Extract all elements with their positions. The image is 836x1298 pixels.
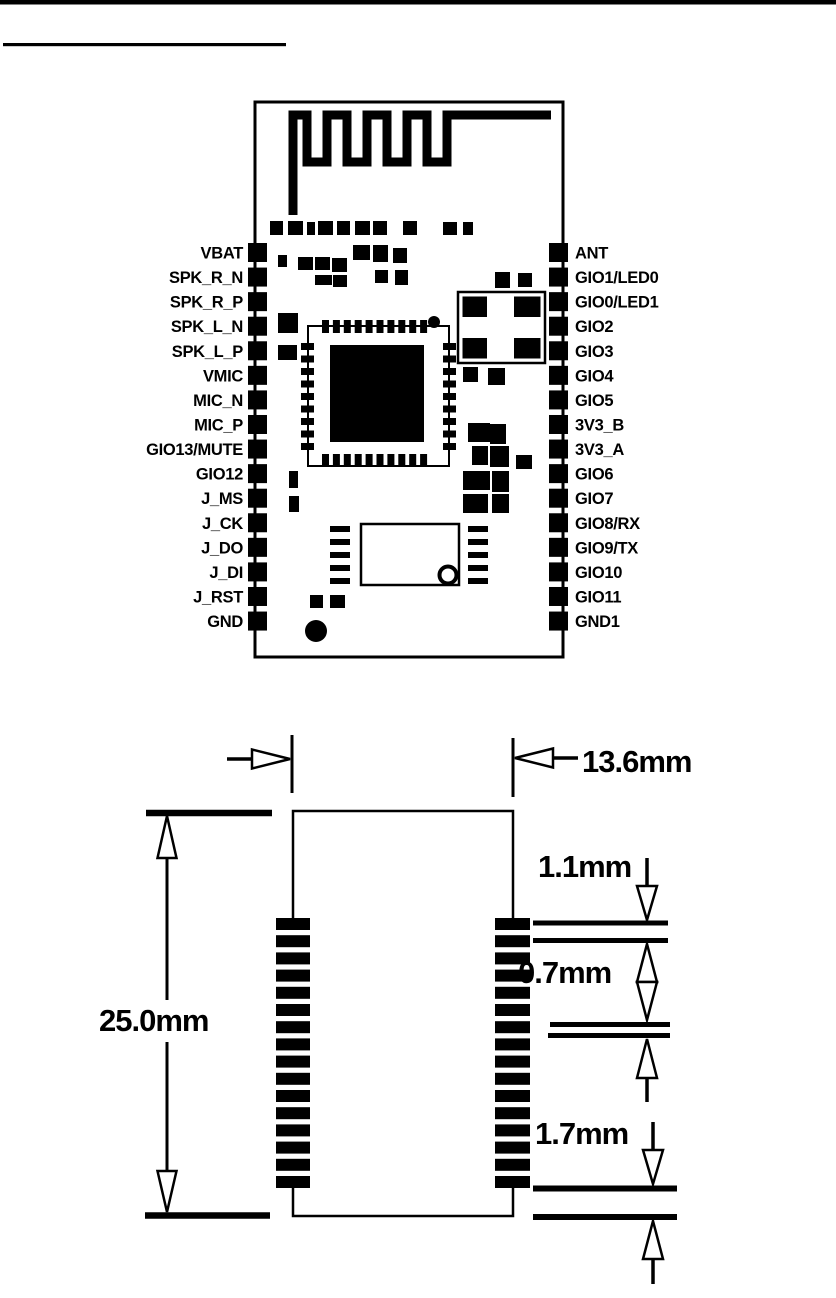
passive-component — [492, 471, 509, 492]
pin-pad-left — [248, 538, 267, 557]
ic-pin — [355, 320, 362, 333]
pin-pad-left — [248, 341, 267, 360]
ic-pin — [443, 368, 456, 375]
footprint-pad-left — [276, 1090, 310, 1102]
pin-label-left: GIO12 — [196, 466, 243, 484]
pin-pad-left — [248, 292, 267, 311]
ic-pin — [443, 418, 456, 425]
passive-component — [337, 221, 350, 235]
pin-label-left: GIO13/MUTE — [146, 441, 243, 459]
passive-component — [307, 222, 315, 235]
ic-pin — [301, 381, 314, 388]
ic-pin — [377, 454, 384, 467]
pin-pad-left — [248, 243, 267, 262]
ic-pin — [443, 343, 456, 350]
passive-component — [492, 494, 509, 513]
ic-pin — [366, 454, 373, 467]
footprint-pad-left — [276, 1107, 310, 1119]
pin-pad-right — [549, 243, 568, 262]
pad-gap-label: 0.7mm — [518, 955, 611, 990]
shield-pad — [468, 539, 488, 545]
pin-pad-right — [549, 612, 568, 631]
pin-pad-right — [549, 268, 568, 287]
module-diagram-canvas: VBATSPK_R_NSPK_R_PSPK_L_NSPK_L_PVMICMIC_… — [0, 0, 836, 1298]
passive-component — [463, 367, 478, 382]
pin-label-right: GIO5 — [575, 392, 613, 410]
passive-component — [375, 270, 388, 283]
pin-pad-right — [549, 317, 568, 336]
ic-pin — [377, 320, 384, 333]
passive-component — [488, 368, 505, 385]
footprint-pad-left — [276, 1176, 310, 1188]
scanned-datasheet-page: VBATSPK_R_NSPK_R_PSPK_L_NSPK_L_PVMICMIC_… — [0, 0, 836, 1298]
passive-component — [393, 248, 407, 263]
shield-pad — [330, 565, 350, 571]
fiducial-circle — [440, 567, 457, 584]
pin-label-right: 3V3_B — [575, 416, 624, 434]
passive-component — [353, 245, 370, 260]
body-outline — [293, 811, 513, 1216]
pin-label-right: 3V3_A — [575, 441, 624, 459]
passive-component — [315, 257, 330, 270]
pin-pad-right — [549, 440, 568, 459]
width-dimension: 13.6mm — [227, 735, 691, 797]
pin-pad-left — [248, 317, 267, 336]
footprint-pad-right — [495, 1090, 530, 1102]
pin-pad-left — [248, 390, 267, 409]
pin-pad-left — [248, 489, 267, 508]
footprint-pad-right — [495, 1107, 530, 1119]
footprint-pad-left — [276, 1021, 310, 1033]
passive-component — [318, 221, 333, 235]
arrowhead-right-icon — [252, 750, 290, 769]
footprint-pad-left — [276, 1073, 310, 1085]
footprint-pad-left — [276, 935, 310, 947]
pin-pad-right — [549, 587, 568, 606]
shield-pad — [468, 526, 488, 532]
pin-pad-right — [549, 341, 568, 360]
footprint-pad-left — [276, 1159, 310, 1171]
pin-label-right: GIO7 — [575, 490, 613, 508]
ic-pin — [443, 443, 456, 450]
ic-pin — [355, 454, 362, 467]
height-dimension-label: 25.0mm — [99, 1003, 208, 1038]
pin-pad-left — [248, 562, 267, 581]
arrowhead-down-icon — [158, 1171, 177, 1212]
passive-component — [270, 221, 283, 235]
arrowhead-down-icon — [643, 1150, 663, 1184]
pin-pad-right — [549, 513, 568, 532]
pin-label-left: J_MS — [201, 490, 243, 508]
mechanical-dimension-drawing: 13.6mm 25.0mm 1.1mm — [99, 735, 691, 1284]
arrowhead-up-icon — [158, 816, 177, 858]
main-ic — [301, 316, 456, 467]
ic-pin — [301, 406, 314, 413]
passive-component — [373, 221, 387, 235]
pin-pad-right — [549, 390, 568, 409]
pin-pad-left — [248, 366, 267, 385]
shield-pad — [330, 539, 350, 545]
ic-pin — [366, 320, 373, 333]
footprint-pad-left — [276, 1056, 310, 1068]
pin-pad-right — [549, 366, 568, 385]
main-ic-die — [330, 345, 424, 442]
footprint-pad-left — [276, 1004, 310, 1016]
shield-pad — [468, 552, 488, 558]
passive-component — [495, 272, 510, 288]
arrowhead-down-icon — [637, 982, 657, 1020]
title-underline — [3, 43, 286, 46]
passive-component — [333, 275, 347, 287]
ic-pin — [420, 320, 427, 333]
passive-component — [443, 222, 457, 235]
crystal-component — [458, 292, 545, 363]
pin-label-left: MIC_N — [193, 392, 243, 410]
passive-component — [330, 595, 345, 608]
shield-pad — [330, 578, 350, 584]
passive-component — [395, 270, 408, 285]
ic-pin — [398, 320, 405, 333]
footprint-pad-right — [495, 1176, 530, 1188]
passive-component — [278, 313, 298, 333]
crystal-cross-vertical — [487, 297, 514, 359]
passive-component — [490, 424, 506, 444]
footprint-pad-left — [276, 1124, 310, 1136]
shield-pad — [330, 552, 350, 558]
pad-top-offset-label: 1.1mm — [538, 849, 631, 884]
left-pin-labels: VBATSPK_R_NSPK_R_PSPK_L_NSPK_L_PVMICMIC_… — [146, 245, 243, 632]
footprint-pad-right — [495, 1021, 530, 1033]
pin-label-left: VBAT — [201, 245, 244, 263]
ic-pin — [322, 320, 329, 333]
footprint-pad-right — [495, 1004, 530, 1016]
passive-component — [332, 258, 347, 272]
pin-label-left: J_DO — [201, 539, 243, 557]
left-pad-column — [276, 918, 310, 1188]
passive-component — [278, 345, 297, 360]
ic-pin — [333, 320, 340, 333]
pin-label-right: GIO10 — [575, 564, 622, 582]
arrowhead-left-icon — [515, 749, 553, 768]
pin-label-left: SPK_R_N — [169, 269, 243, 287]
footprint-pad-right — [495, 1073, 530, 1085]
right-pin-labels: ANTGIO1/LED0GIO0/LED1GIO2GIO3GIO4GIO53V3… — [575, 245, 659, 632]
ic-pin — [301, 343, 314, 350]
passive-component — [403, 221, 417, 235]
pad-bottom-offset-label: 1.7mm — [535, 1116, 628, 1151]
pin-pad-left — [248, 440, 267, 459]
pad-gap-dimension: 0.7mm — [518, 941, 670, 1103]
passive-component — [516, 455, 532, 469]
ic-pin — [409, 454, 416, 467]
passive-component — [468, 423, 490, 442]
ic-pin — [333, 454, 340, 467]
pin-label-left: J_DI — [209, 564, 243, 582]
height-dimension: 25.0mm — [99, 813, 272, 1216]
pin-pad-right — [549, 464, 568, 483]
ic-pin — [443, 356, 456, 363]
passive-component — [490, 446, 509, 467]
page-top-border — [0, 0, 836, 5]
footprint-pad-left — [276, 970, 310, 982]
pin-pad-right — [549, 538, 568, 557]
arrowhead-up-icon — [637, 1039, 657, 1078]
ic-pin — [443, 431, 456, 438]
pin-label-right: GIO1/LED0 — [575, 269, 659, 287]
shield-pad — [468, 578, 488, 584]
pin-label-right: GND1 — [575, 613, 620, 631]
footprint-pad-left — [276, 987, 310, 999]
ic-pin — [344, 454, 351, 467]
footprint-pad-left — [276, 1038, 310, 1050]
ic-pin — [420, 454, 427, 467]
pad-top-offset-dimension: 1.1mm — [533, 849, 668, 923]
ic-pin — [387, 320, 394, 333]
pin-label-right: GIO9/TX — [575, 539, 638, 557]
pin-pad-left — [248, 464, 267, 483]
module-pinout-diagram: VBATSPK_R_NSPK_R_PSPK_L_NSPK_L_PVMICMIC_… — [146, 102, 659, 657]
pin-label-right: GIO2 — [575, 318, 613, 336]
footprint-pad-right — [495, 918, 530, 930]
pin-label-left: J_RST — [193, 588, 243, 606]
passive-component — [298, 257, 313, 270]
passive-component — [472, 446, 488, 465]
pin-label-right: GIO6 — [575, 466, 613, 484]
shield-pad — [330, 526, 350, 532]
footprint-pad-left — [276, 952, 310, 964]
ic-pin — [398, 454, 405, 467]
pin-label-right: GIO4 — [575, 367, 614, 385]
pin-label-right: GIO8/RX — [575, 515, 640, 533]
shield-pad — [468, 565, 488, 571]
ic-pin — [387, 454, 394, 467]
footprint-pad-left — [276, 1142, 310, 1154]
ic-pin — [344, 320, 351, 333]
footprint-pad-left — [276, 918, 310, 930]
pin-pad-right — [549, 415, 568, 434]
pin-pad-right — [549, 489, 568, 508]
passive-component — [289, 471, 298, 488]
ic-pin — [322, 454, 329, 467]
ic-pin — [301, 368, 314, 375]
pin-label-right: GIO11 — [575, 588, 621, 606]
pad-bottom-offset-dimension: 1.7mm — [533, 1116, 677, 1284]
ic-pin — [301, 356, 314, 363]
ic-pin — [301, 443, 314, 450]
ic-pin — [409, 320, 416, 333]
passive-component — [288, 221, 303, 235]
passive-component — [463, 222, 473, 235]
passive-component — [355, 221, 370, 235]
ic-pin — [443, 406, 456, 413]
pin-label-right: GIO3 — [575, 343, 613, 361]
pin-pad-left — [248, 415, 267, 434]
pin-label-left: J_CK — [202, 515, 243, 533]
pin-label-left: MIC_P — [194, 416, 243, 434]
footprint-pad-right — [495, 1159, 530, 1171]
passive-component — [289, 496, 299, 512]
pin-label-right: GIO0/LED1 — [575, 294, 659, 312]
pin1-marker-dot — [428, 316, 440, 328]
footprint-pad-right — [495, 1056, 530, 1068]
ic-pin — [301, 393, 314, 400]
pin-label-left: VMIC — [203, 367, 243, 385]
passive-component — [463, 494, 488, 513]
passive-component — [310, 595, 323, 608]
passive-component — [463, 471, 490, 490]
pin-pad-right — [549, 562, 568, 581]
pin-label-left: GND — [207, 613, 243, 631]
passive-component — [315, 275, 332, 285]
footprint-pad-right — [495, 1142, 530, 1154]
pin-pad-left — [248, 612, 267, 631]
passive-component — [518, 273, 532, 287]
passive-component — [373, 245, 388, 262]
arrowhead-up-icon — [643, 1221, 663, 1259]
pin-label-right: ANT — [575, 245, 608, 263]
ic-pin — [301, 431, 314, 438]
footprint-pad-right — [495, 1124, 530, 1136]
width-dimension-label: 13.6mm — [582, 744, 691, 779]
pin-pad-left — [248, 587, 267, 606]
ic-pin — [443, 381, 456, 388]
testpoint-dot — [305, 620, 327, 642]
pin-label-left: SPK_L_N — [171, 318, 243, 336]
pin-label-left: SPK_L_P — [172, 343, 244, 361]
footprint-pad-right — [495, 1038, 530, 1050]
passive-component — [278, 255, 287, 267]
pin-pad-left — [248, 268, 267, 287]
pin-pad-right — [549, 292, 568, 311]
footprint-pad-right — [495, 935, 530, 947]
ic-pin — [301, 418, 314, 425]
arrowhead-down-icon — [637, 886, 657, 920]
pin-pad-left — [248, 513, 267, 532]
arrowhead-up-icon — [637, 944, 657, 982]
pin-label-left: SPK_R_P — [170, 294, 243, 312]
ic-pin — [443, 393, 456, 400]
